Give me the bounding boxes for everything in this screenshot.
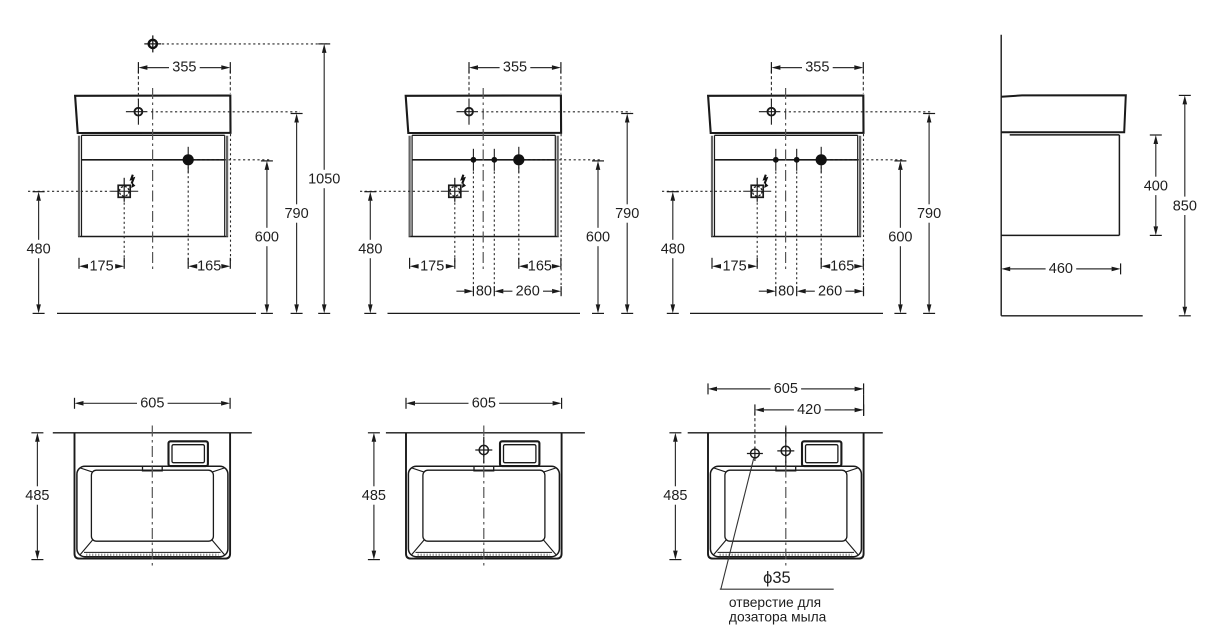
svg-text:790: 790	[917, 206, 941, 222]
svg-text:420: 420	[797, 402, 821, 418]
svg-text:дозатора мыла: дозатора мыла	[729, 610, 827, 625]
svg-text:605: 605	[472, 395, 496, 411]
svg-text:605: 605	[140, 395, 164, 411]
svg-text:175: 175	[420, 258, 444, 274]
svg-text:165: 165	[197, 258, 221, 274]
svg-text:480: 480	[26, 242, 50, 258]
svg-text:605: 605	[774, 381, 798, 397]
svg-text:480: 480	[661, 242, 685, 258]
svg-text:850: 850	[1173, 198, 1197, 214]
svg-text:460: 460	[1049, 261, 1073, 277]
svg-text:175: 175	[722, 258, 746, 274]
svg-text:355: 355	[805, 60, 829, 76]
svg-text:355: 355	[503, 60, 527, 76]
svg-text:отверстие для: отверстие для	[729, 595, 821, 610]
svg-text:600: 600	[255, 230, 279, 246]
svg-text:ϕ35: ϕ35	[763, 569, 791, 587]
svg-text:485: 485	[663, 488, 687, 504]
svg-text:1050: 1050	[308, 172, 340, 188]
svg-text:165: 165	[528, 258, 552, 274]
svg-text:485: 485	[25, 488, 49, 504]
svg-text:80: 80	[778, 283, 794, 299]
svg-text:600: 600	[586, 230, 610, 246]
svg-text:790: 790	[615, 206, 639, 222]
svg-text:165: 165	[830, 258, 854, 274]
svg-text:400: 400	[1144, 179, 1168, 195]
svg-text:480: 480	[358, 242, 382, 258]
svg-text:600: 600	[888, 230, 912, 246]
svg-text:485: 485	[362, 488, 386, 504]
svg-text:790: 790	[284, 206, 308, 222]
svg-text:260: 260	[516, 283, 540, 299]
svg-text:80: 80	[476, 283, 492, 299]
svg-text:260: 260	[818, 283, 842, 299]
svg-text:175: 175	[89, 258, 113, 274]
svg-text:355: 355	[172, 60, 196, 76]
